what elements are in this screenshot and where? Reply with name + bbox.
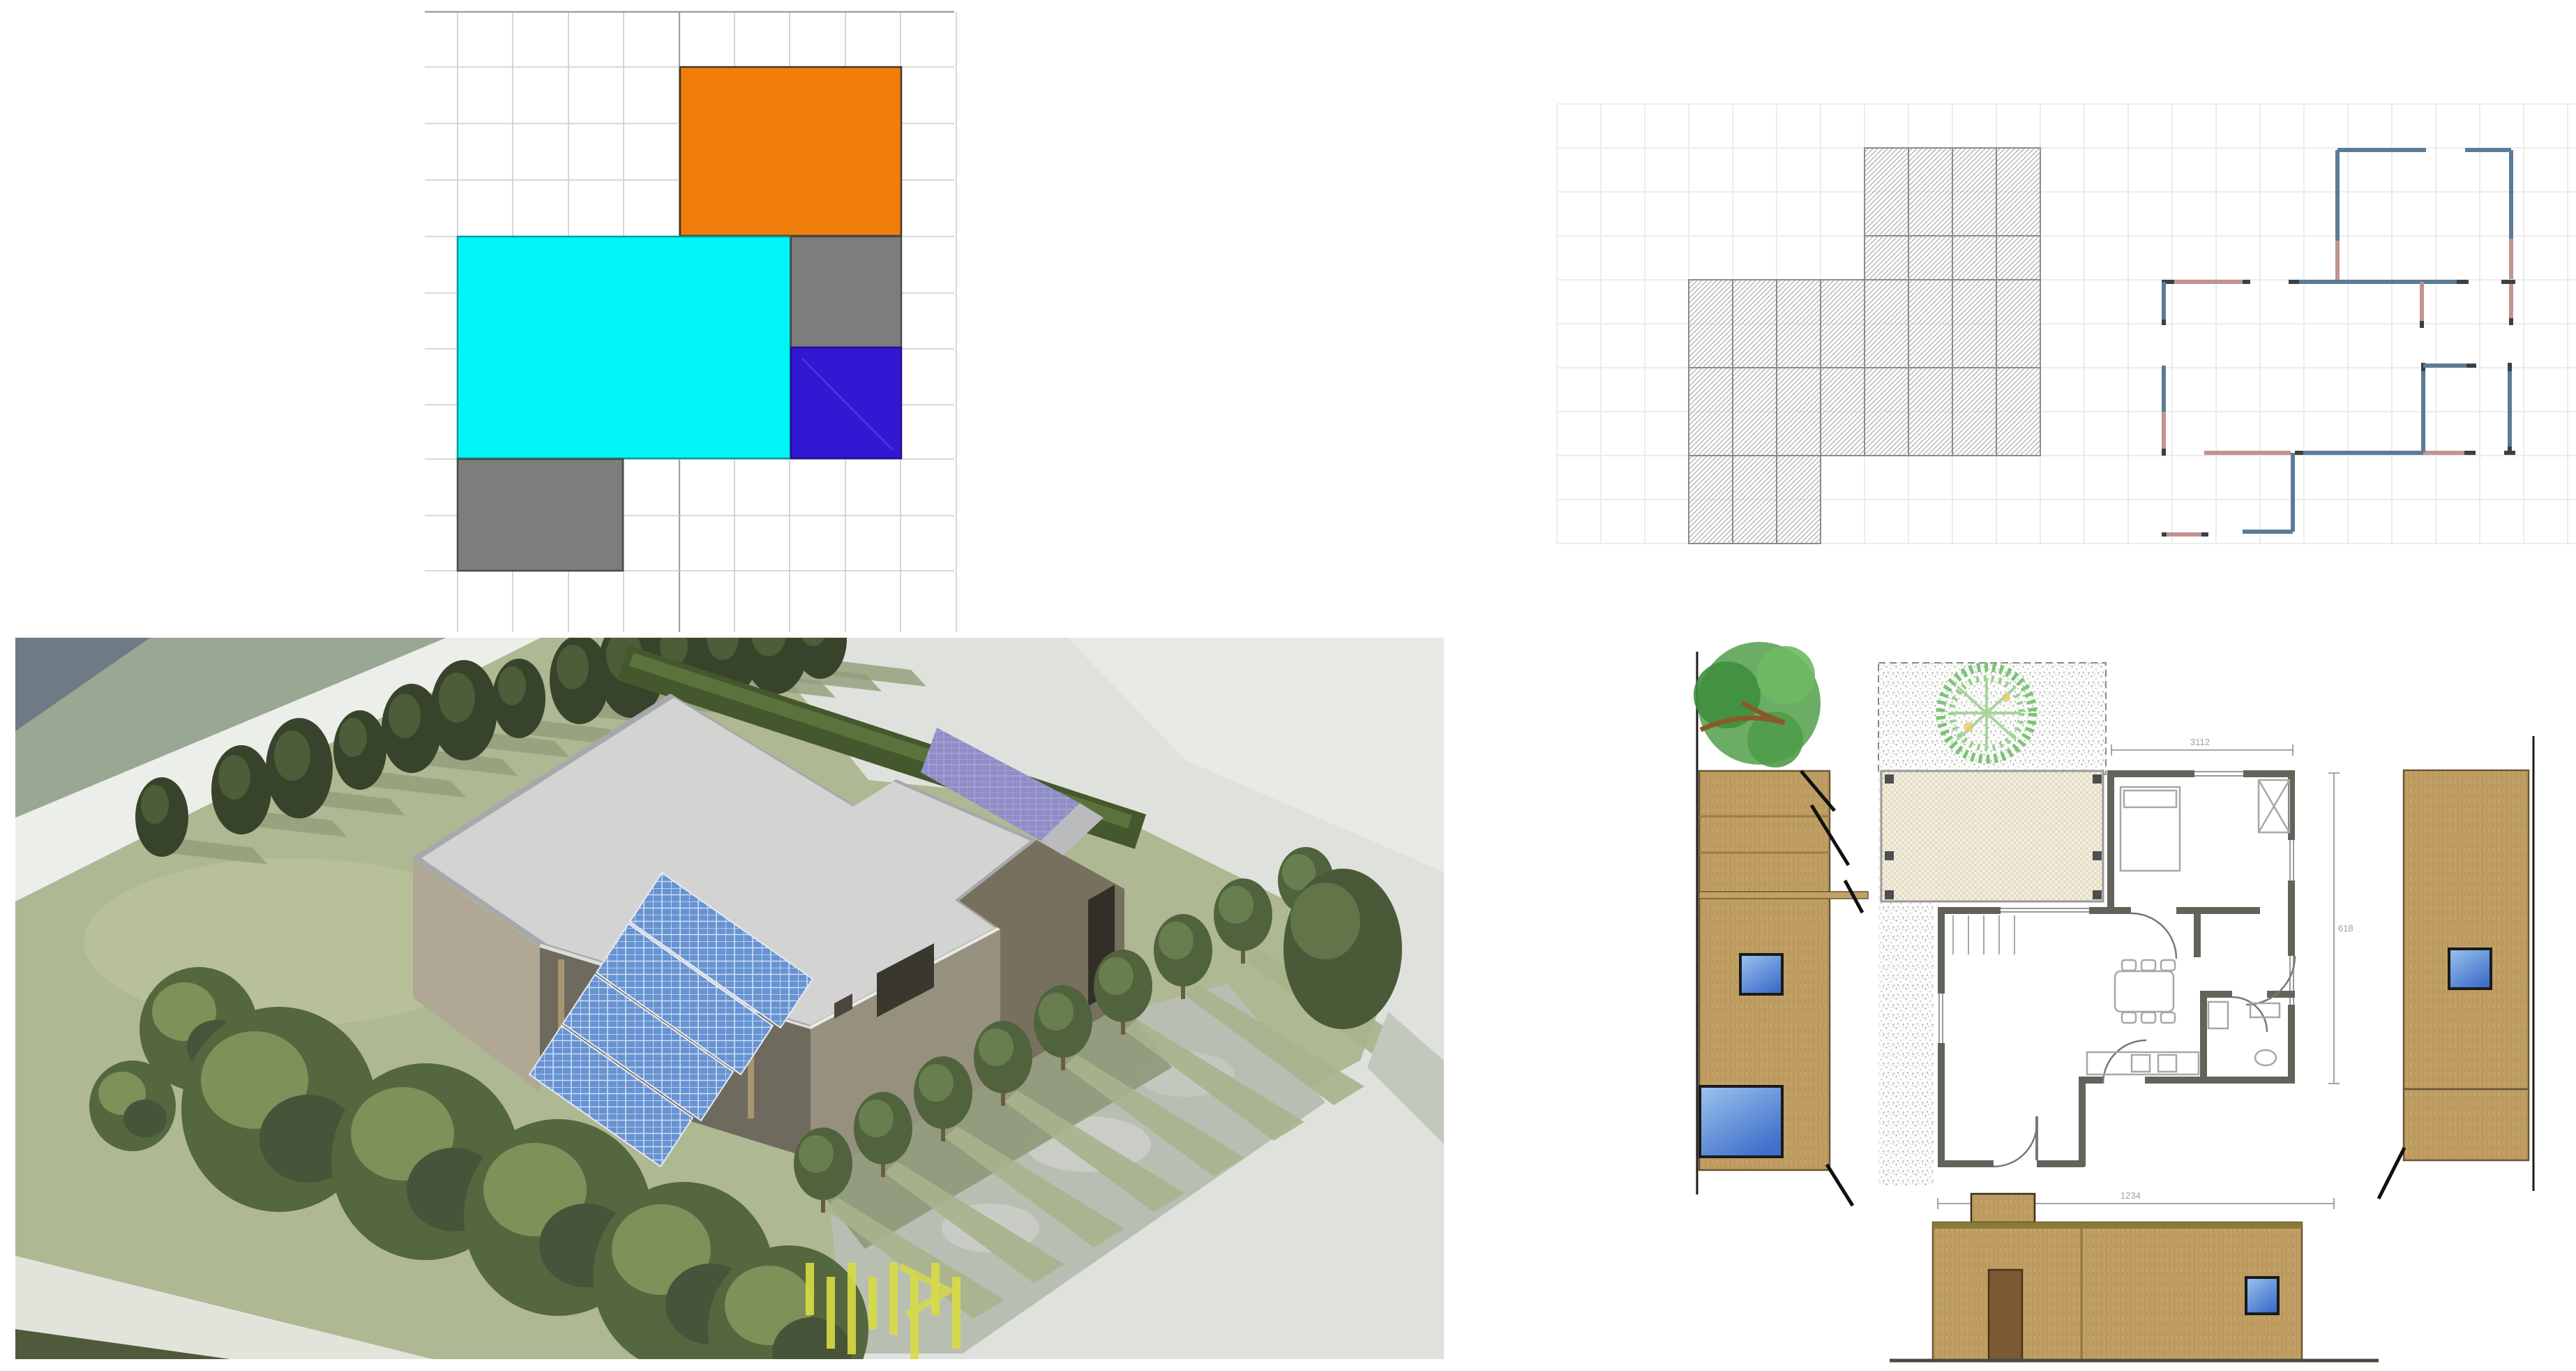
- svg-text:1234: 1234: [2121, 1190, 2141, 1201]
- svg-text:618: 618: [2338, 923, 2353, 934]
- svg-text:3112: 3112: [2190, 737, 2210, 747]
